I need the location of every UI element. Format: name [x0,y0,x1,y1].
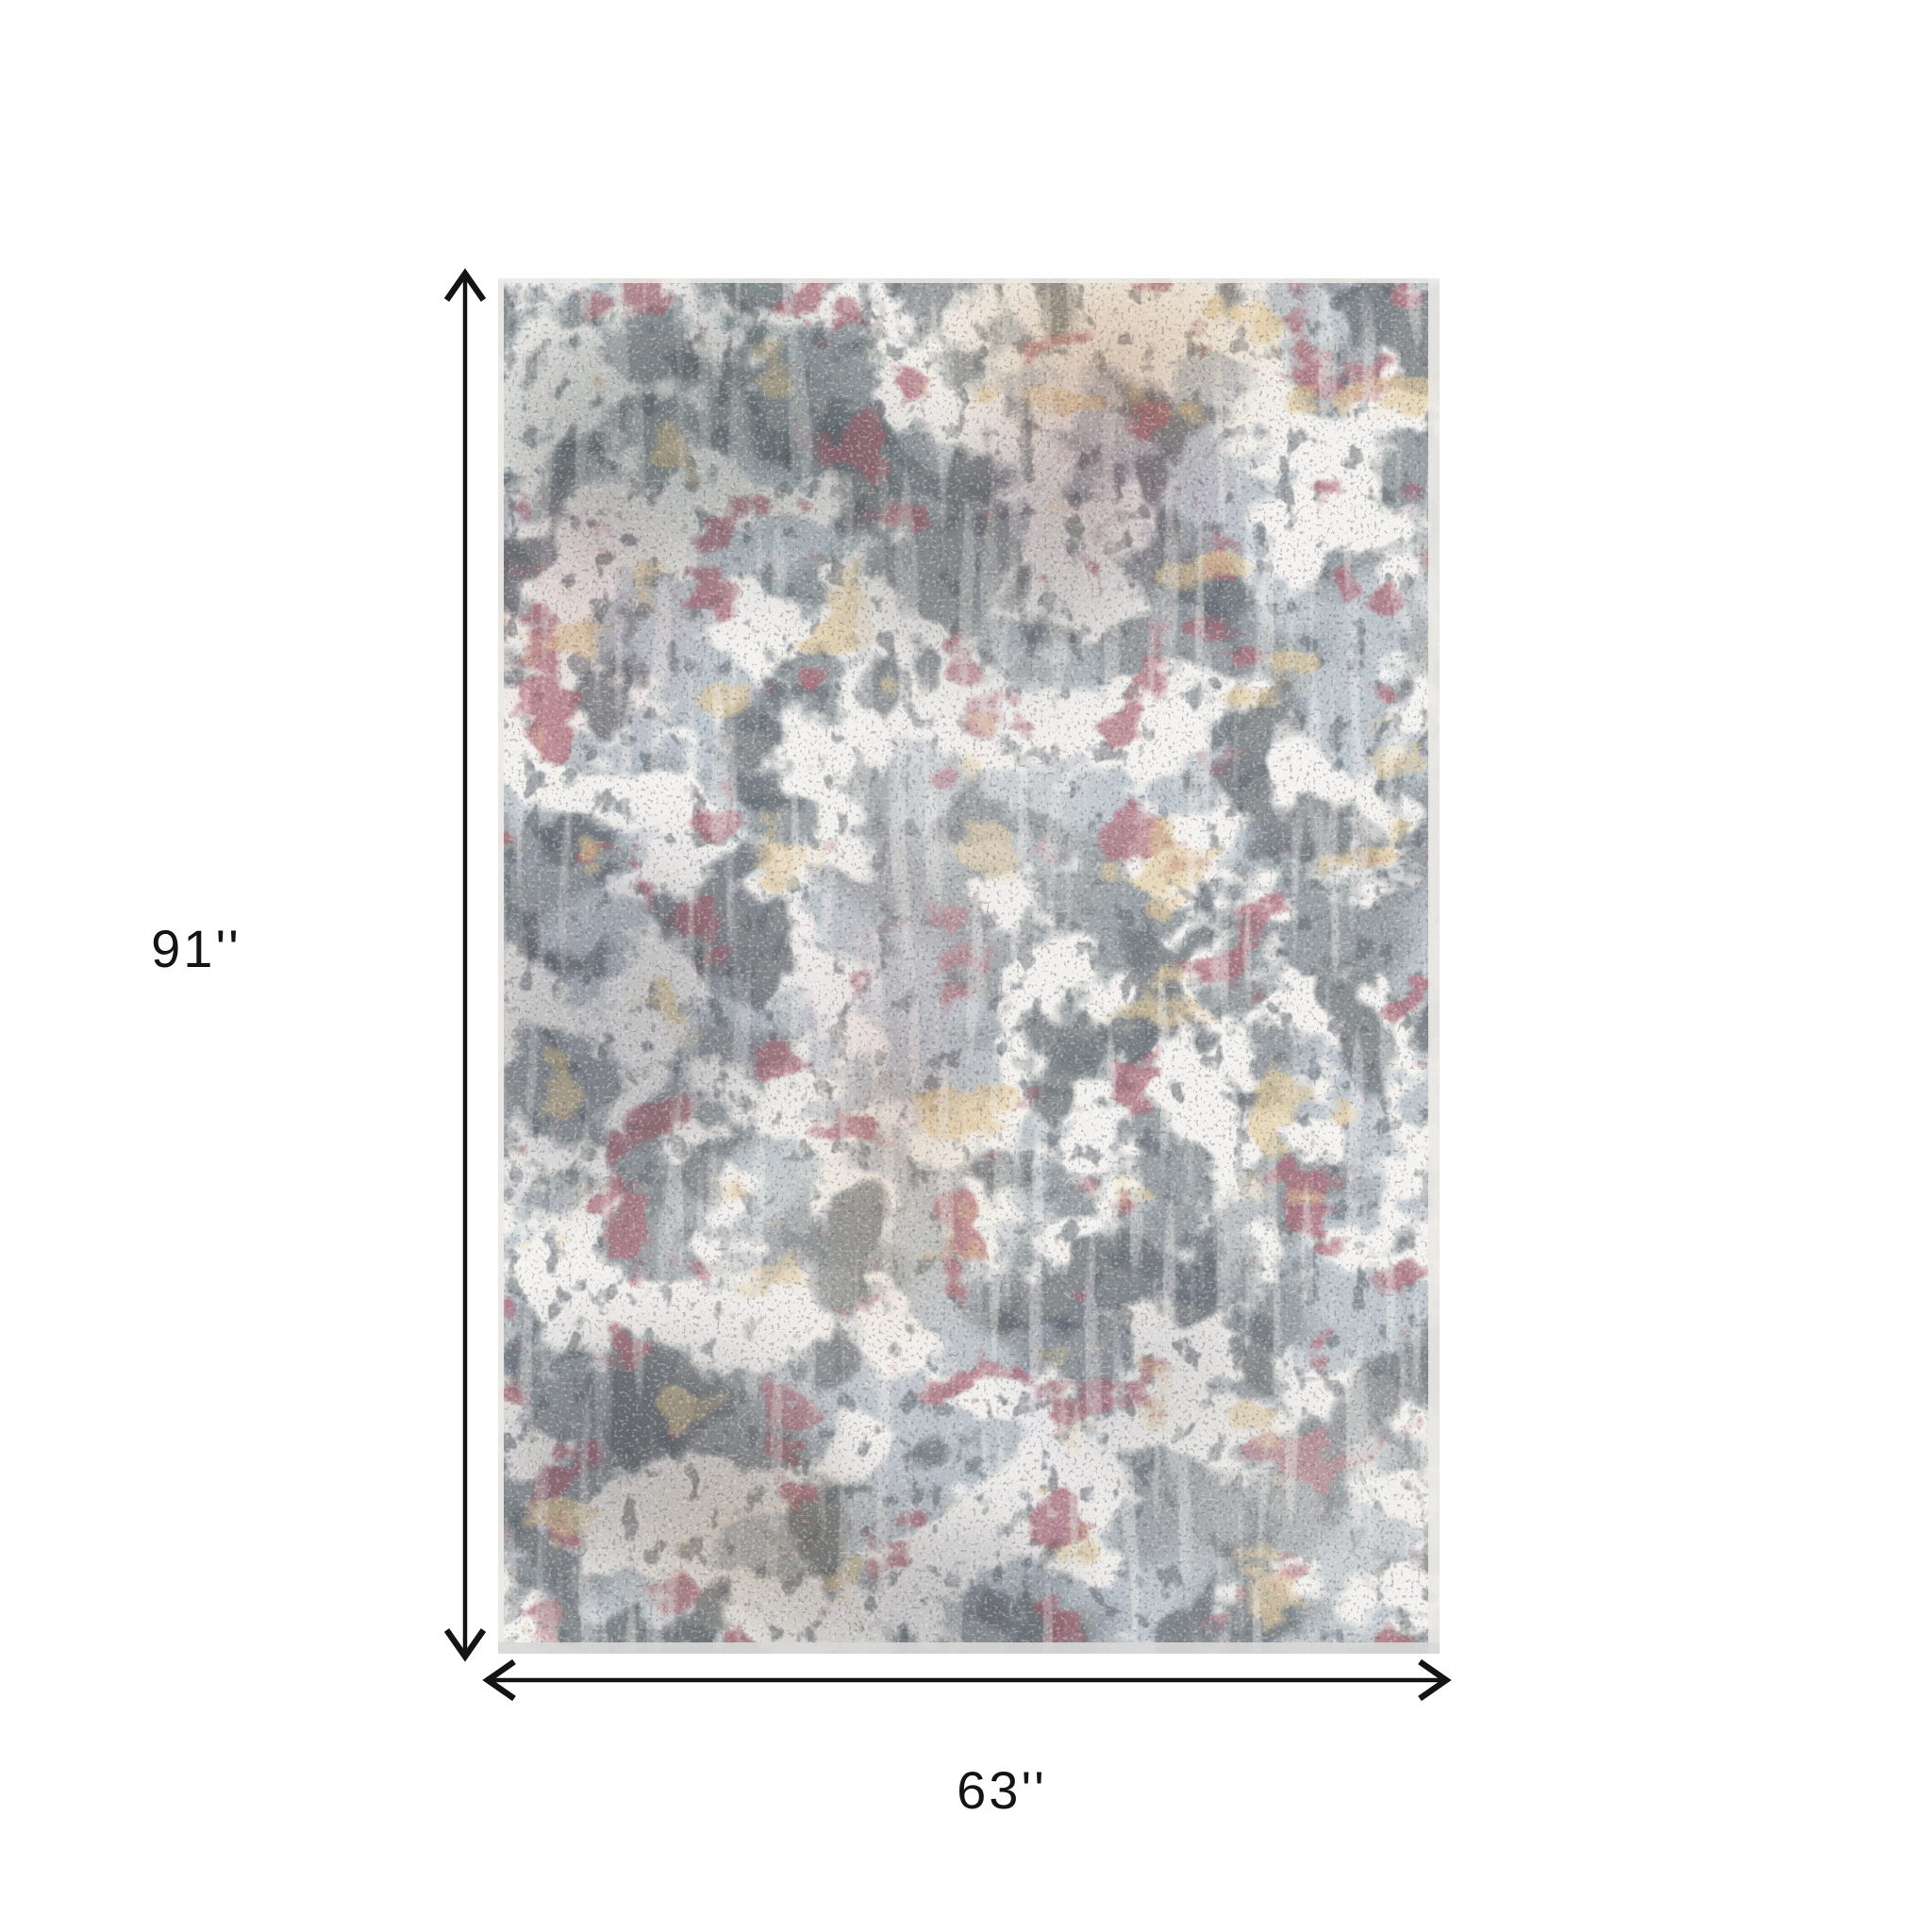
rug-texture [498,278,1440,1654]
width-dimension-label: 63'' [915,1755,1089,1826]
width-value: 63'' [957,1760,1047,1820]
rug-image [498,278,1440,1654]
height-dimension-label: 91'' [111,913,281,985]
product-dimension-figure: 91'' 63'' [0,0,1932,1932]
height-value: 91'' [151,919,241,978]
width-dimension-arrow [481,1652,1453,1708]
height-dimension-arrow [437,264,493,1666]
